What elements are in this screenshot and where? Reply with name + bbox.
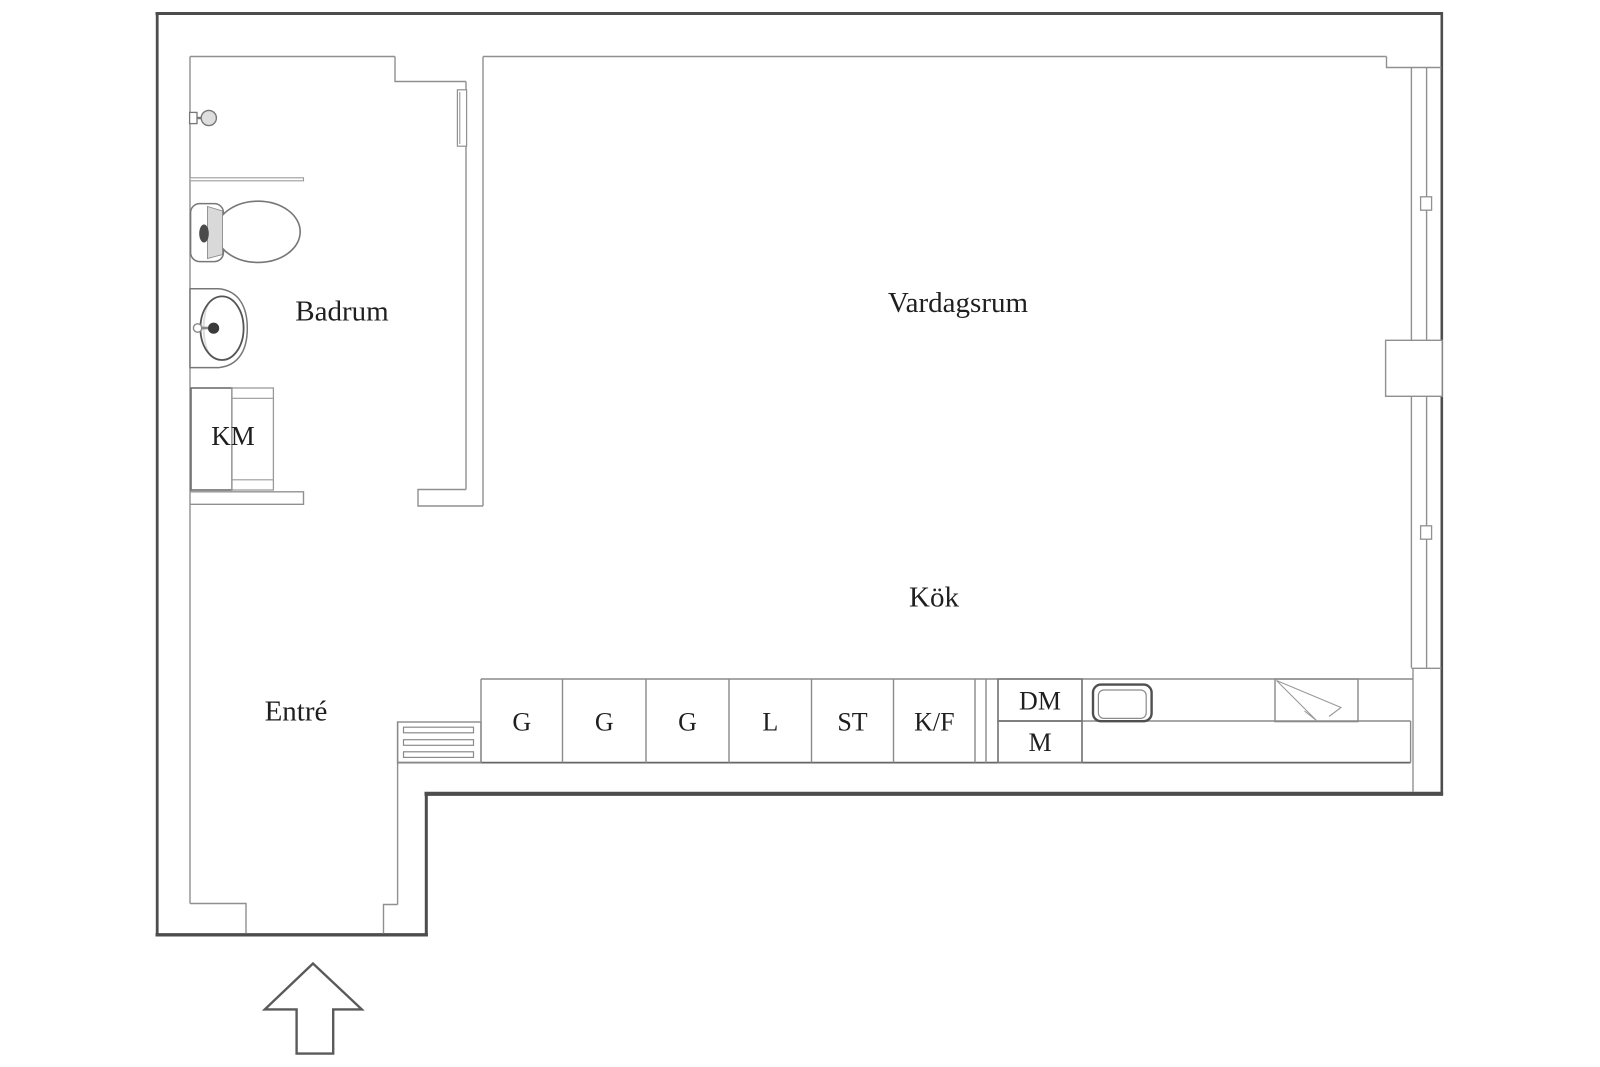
cabinet-label: L [762, 708, 778, 737]
shower-tap-base [190, 112, 197, 123]
toilet-seat-hinge [208, 207, 223, 259]
top-right-wall-step [1387, 57, 1442, 68]
toilet-bowl [216, 201, 300, 262]
cabinet-label: K/F [914, 708, 954, 737]
shower-tap-icon [190, 110, 217, 125]
bathroom-shelf [190, 178, 304, 181]
cabinet-label: G [678, 708, 697, 737]
bathroom-top-notch [395, 57, 466, 82]
room-label-vardagsrum: Vardagsrum [888, 287, 1029, 319]
cabinet-label: G [512, 708, 531, 737]
appliance-label-dm: DM [1019, 687, 1061, 716]
toilet-icon [191, 201, 301, 262]
bathroom-bottom-wall-band [190, 492, 304, 505]
basin-tap-head [208, 323, 219, 334]
appliance-label-m: M [1028, 728, 1051, 757]
toilet-flush-button [199, 225, 209, 243]
shower-tap-knob [201, 110, 216, 125]
interior-walls [190, 57, 1442, 934]
outer-walls [156, 12, 1444, 936]
floor-plan-page: Badrum Vardagsrum Kök Entré KM G G G L S… [0, 0, 1600, 1067]
drainboard-lines [1277, 681, 1342, 722]
window-pillar-block [1386, 340, 1443, 396]
room-label-entre: Entré [265, 696, 328, 728]
cabinet-label: ST [837, 708, 867, 737]
window-right [457, 68, 1442, 792]
basin-icon [190, 289, 247, 368]
window-handle-icon [1421, 197, 1432, 210]
room-label-kok: Kök [909, 582, 959, 614]
vent-grille-frame [398, 722, 481, 763]
floor-plan-canvas: Badrum Vardagsrum Kök Entré KM G G G L S… [0, 0, 1600, 1067]
vent-grille-slat [404, 740, 474, 746]
vent-grille-slat [404, 727, 474, 733]
entrance-arrow-icon [265, 964, 362, 1054]
appliance-label-km: KM [211, 421, 255, 451]
vent-grille [398, 722, 481, 763]
entre-doorway-left-step [190, 904, 246, 934]
bathroom-wall-vent [457, 90, 466, 146]
window-handle-icon [1421, 526, 1432, 539]
bathroom-wall-foot [418, 490, 483, 507]
kitchen-counter [398, 679, 1413, 763]
cabinet-dividers [481, 679, 1082, 763]
vent-grille-slat [404, 752, 474, 758]
cabinet-label: G [595, 708, 614, 737]
kitchen-sink-icon [1093, 685, 1152, 722]
drainboard-icon [1275, 679, 1358, 722]
room-label-badrum: Badrum [295, 296, 389, 328]
kitchen-sink-inner [1098, 690, 1146, 718]
basin-tap-base [193, 324, 201, 332]
entre-doorway-right-step [384, 905, 398, 934]
